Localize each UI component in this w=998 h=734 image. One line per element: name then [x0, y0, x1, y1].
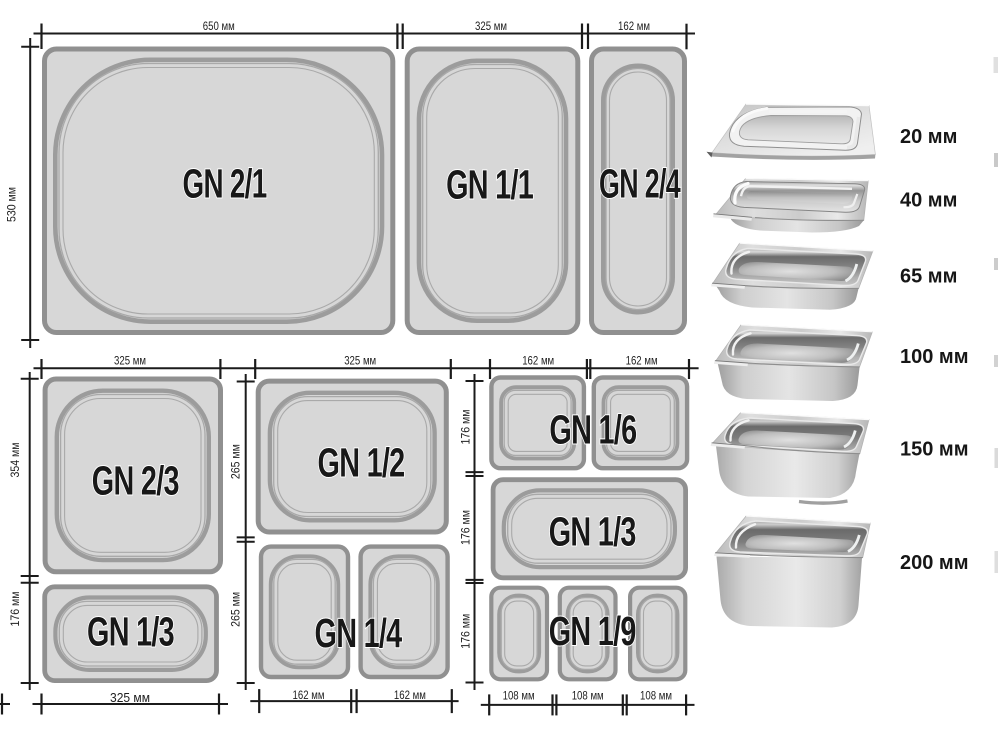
svg-text:150 мм: 150 мм [900, 439, 969, 461]
svg-text:GN 2/1: GN 2/1 [183, 161, 267, 207]
svg-text:108 мм: 108 мм [572, 690, 604, 702]
svg-text:20 мм: 20 мм [900, 126, 957, 148]
svg-text:530 мм: 530 мм [7, 187, 19, 222]
svg-text:GN 2/4: GN 2/4 [599, 161, 681, 207]
svg-text:265 мм: 265 мм [231, 444, 243, 479]
svg-text:200 мм: 200 мм [900, 552, 969, 574]
svg-text:325 мм: 325 мм [344, 356, 376, 368]
svg-text:162 мм: 162 мм [394, 690, 426, 702]
svg-text:162 мм: 162 мм [293, 690, 325, 702]
svg-text:176 мм: 176 мм [461, 510, 473, 545]
svg-text:162 мм: 162 мм [626, 356, 658, 368]
svg-text:354 мм: 354 мм [10, 442, 22, 477]
svg-text:162 мм: 162 мм [522, 356, 554, 368]
svg-text:GN 1/9: GN 1/9 [549, 608, 636, 654]
svg-text:108 мм: 108 мм [503, 690, 535, 702]
svg-text:GN 1/6: GN 1/6 [549, 407, 636, 453]
svg-text:GN 1/3: GN 1/3 [87, 609, 174, 655]
svg-text:325 мм: 325 мм [114, 356, 146, 368]
svg-text:GN 2/3: GN 2/3 [92, 458, 179, 504]
svg-text:108 мм: 108 мм [640, 690, 672, 702]
svg-text:GN 1/2: GN 1/2 [318, 440, 405, 486]
svg-text:176 мм: 176 мм [10, 591, 22, 626]
svg-text:176 мм: 176 мм [461, 614, 473, 649]
svg-text:GN 1/4: GN 1/4 [315, 610, 403, 656]
svg-text:GN 1/3: GN 1/3 [549, 509, 636, 555]
svg-text:40 мм: 40 мм [900, 190, 957, 212]
svg-text:100 мм: 100 мм [900, 346, 969, 368]
svg-text:265 мм: 265 мм [231, 592, 243, 627]
svg-text:162 мм: 162 мм [618, 21, 650, 33]
svg-text:176 мм: 176 мм [461, 409, 473, 444]
svg-text:325 мм: 325 мм [475, 21, 507, 33]
svg-text:65 мм: 65 мм [900, 265, 957, 287]
svg-text:GN 1/1: GN 1/1 [446, 162, 533, 208]
svg-text:325 мм: 325 мм [110, 690, 150, 705]
svg-text:650 мм: 650 мм [203, 21, 235, 33]
